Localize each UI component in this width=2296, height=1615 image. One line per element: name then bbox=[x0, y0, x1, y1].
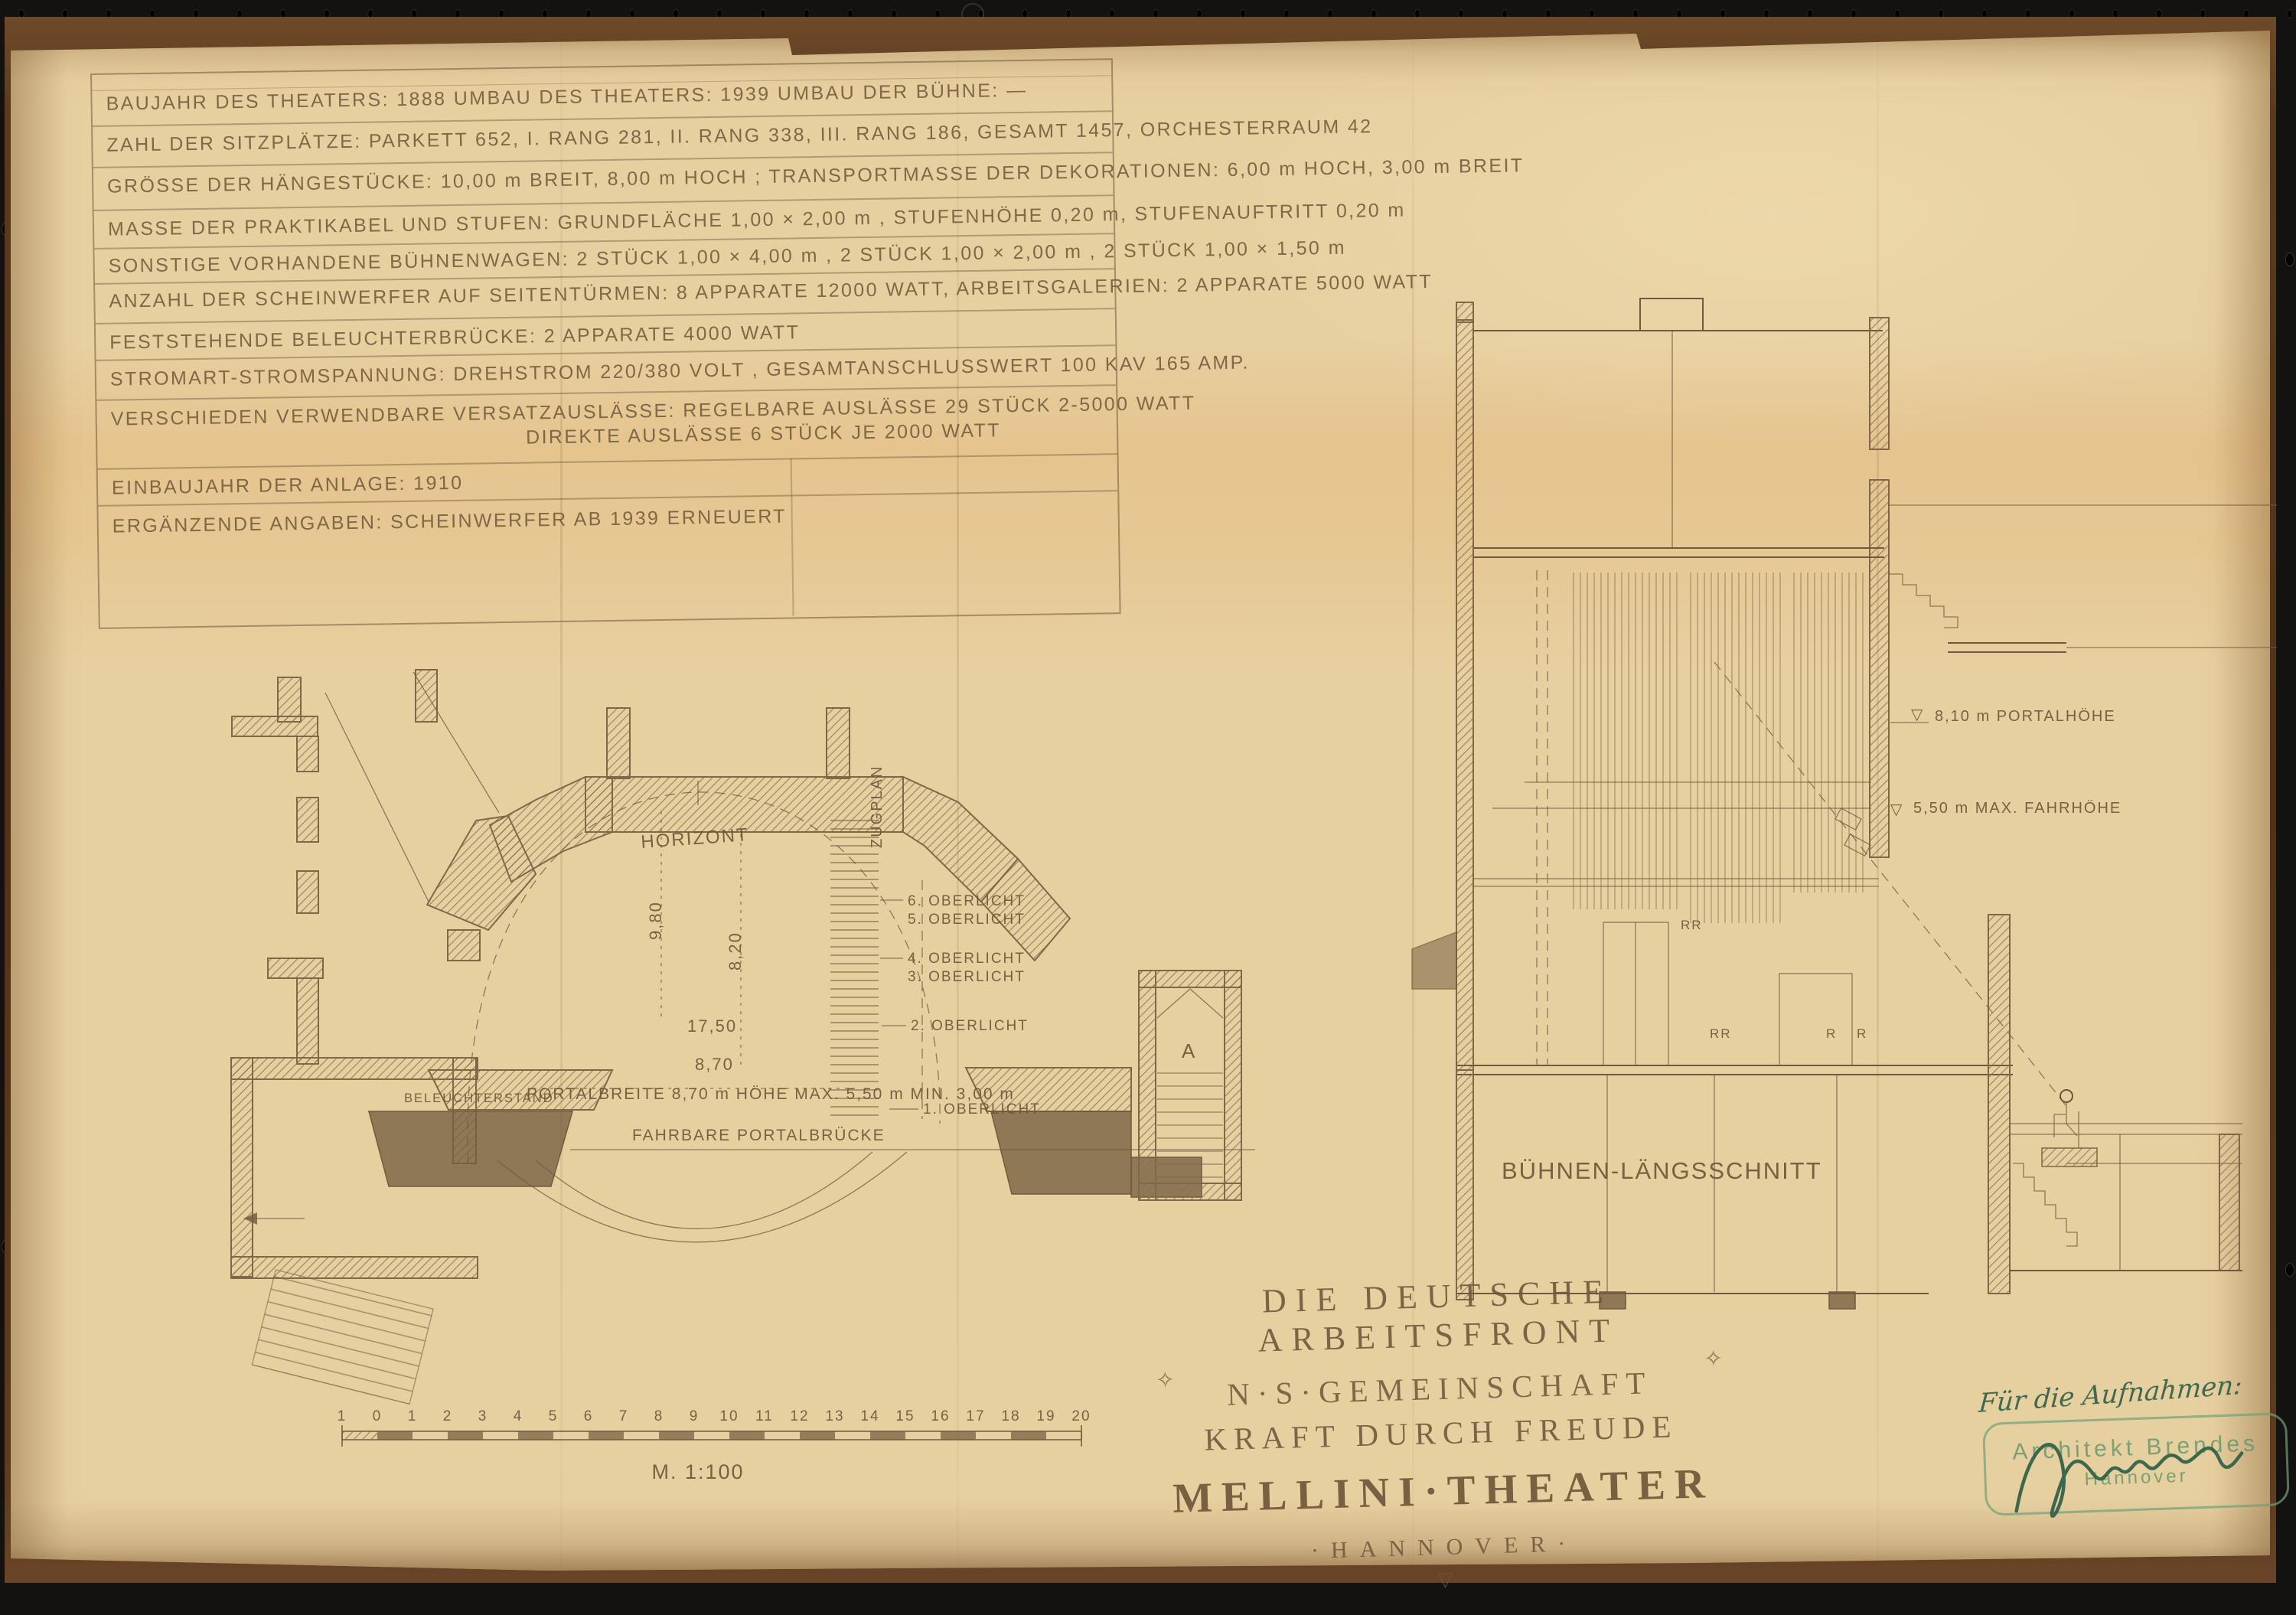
signature bbox=[1990, 1393, 2281, 1538]
plan-portal-tower-left-base bbox=[369, 1111, 572, 1186]
title-line-theater-name: MELLINI·THEATER bbox=[1172, 1459, 1713, 1522]
plan-stair-mark bbox=[1157, 989, 1190, 1018]
rope-label: R bbox=[1857, 1026, 1867, 1041]
scale-segment bbox=[870, 1431, 905, 1440]
oberlicht-label: 2. OBERLICHT bbox=[911, 1018, 1029, 1034]
scale-number: 8 bbox=[654, 1408, 664, 1424]
construction-line bbox=[325, 693, 429, 902]
section-left-ledge bbox=[1412, 932, 1456, 989]
plan-wall bbox=[297, 798, 318, 842]
section-parapet bbox=[1456, 302, 1473, 322]
section-right-wall bbox=[1870, 480, 1889, 857]
fly-lines bbox=[1688, 573, 1785, 923]
plan-stair-wall bbox=[1225, 971, 1241, 1200]
scale-segment bbox=[1011, 1431, 1046, 1440]
plan-wall bbox=[232, 716, 318, 736]
scale-number: 0 bbox=[373, 1408, 383, 1424]
scale-segment bbox=[342, 1431, 377, 1440]
scanned-theater-drawing: BAUJAHR DES THEATERS: 1888 UMBAU DES THE… bbox=[0, 0, 2296, 1615]
title-block: DIE DEUTSCHE ARBEITSFRONT ✧ ✧ N·S·GEMEIN… bbox=[1166, 1269, 1715, 1599]
oberlicht-label: 3. OBERLICHT bbox=[908, 969, 1026, 985]
plan-wall bbox=[268, 958, 323, 978]
scale-number: 15 bbox=[895, 1408, 915, 1424]
scale-segment bbox=[659, 1431, 694, 1440]
scale-number: 19 bbox=[1036, 1408, 1055, 1424]
machinery-box bbox=[1779, 974, 1852, 1065]
scale-number: 14 bbox=[860, 1408, 879, 1424]
plan-room-wall bbox=[231, 1257, 478, 1278]
section-roof-box bbox=[1640, 299, 1703, 331]
dim-label-9-80: 9,80 bbox=[646, 901, 665, 940]
rope-label: RR bbox=[1710, 1026, 1732, 1041]
rope-label: R bbox=[1826, 1026, 1837, 1041]
plan-wall-stub bbox=[827, 708, 850, 778]
scale-segment bbox=[589, 1431, 624, 1440]
scale-caption: M. 1:100 bbox=[651, 1460, 744, 1483]
plan-stair-wall bbox=[1139, 971, 1241, 987]
title-line-kdf: KRAFT DURCH FREUDE bbox=[1170, 1407, 1711, 1459]
scale-segment bbox=[729, 1431, 765, 1440]
scale-segment bbox=[448, 1431, 483, 1440]
scale-number: 20 bbox=[1071, 1408, 1091, 1424]
scale-number: 1 bbox=[408, 1408, 418, 1424]
basement-right-wall bbox=[2219, 1134, 2239, 1271]
plan-stair-lower-left bbox=[252, 1270, 433, 1404]
scale-number: 1 bbox=[338, 1408, 347, 1424]
scale-number: 16 bbox=[931, 1408, 950, 1424]
level-marker-glyph: ▽ bbox=[1911, 706, 1924, 723]
scale-number: 10 bbox=[719, 1408, 739, 1424]
plan-fly-rail bbox=[830, 813, 879, 1119]
level-marker-glyph: ▽ bbox=[1890, 801, 1903, 818]
scale-number: 12 bbox=[790, 1408, 809, 1424]
title-line-city: ·HANNOVER· bbox=[1174, 1527, 1715, 1568]
plan-stair-treads bbox=[1157, 1065, 1223, 1180]
plan-wall bbox=[297, 871, 318, 913]
scale-bar: 1 0 1 2 3 4 5 6 7 8 9 10 11 12 13 14 15 … bbox=[338, 1408, 1091, 1483]
scale-number: 18 bbox=[1001, 1408, 1020, 1424]
oberlicht-label: 6. OBERLICHT bbox=[908, 893, 1026, 909]
lighting-stand-label: BELEUCHTERSTAND bbox=[404, 1091, 554, 1105]
seated-figure bbox=[2042, 1090, 2097, 1166]
max-travel-label: 5,50 m MAX. FAHRHÖHE bbox=[1913, 800, 2122, 817]
title-line-community: N·S·GEMEINSCHAFT bbox=[1169, 1362, 1711, 1414]
oberlicht-label: 1. OBERLICHT bbox=[923, 1101, 1041, 1117]
stage-section: ▽ 8,10 m PORTALHÖHE ▽ 5,50 m MAX. FAHRHÖ… bbox=[1412, 299, 2277, 1309]
drawing-layer: .w{fill:url(#hat);stroke:#7d6848;stroke-… bbox=[0, 0, 2296, 1615]
dim-label-17-50: 17,50 bbox=[687, 1016, 737, 1036]
scale-number: 5 bbox=[549, 1408, 559, 1424]
scale-number: 2 bbox=[443, 1408, 453, 1424]
title-line-organization: DIE DEUTSCHE ARBEITSFRONT bbox=[1166, 1269, 1709, 1362]
stage-floor-plan: HORIZONT ZUGPLAN 9,80 8,20 17,50 8,70 PO… bbox=[231, 670, 1255, 1404]
plan-wall bbox=[297, 978, 318, 1064]
plan-wall bbox=[278, 677, 301, 722]
portal-bridge-label: FAHRBARE PORTALBRÜCKE bbox=[632, 1127, 885, 1144]
stair-letter-label: A bbox=[1182, 1039, 1196, 1062]
plan-wall-stub bbox=[607, 708, 630, 778]
scale-number: 13 bbox=[825, 1408, 844, 1424]
section-caption: BÜHNEN-LÄNGSSCHNITT bbox=[1502, 1157, 1822, 1184]
dim-label-8-70: 8,70 bbox=[695, 1055, 734, 1074]
scale-number: 3 bbox=[478, 1408, 488, 1424]
fly-lines bbox=[1791, 573, 1867, 892]
plan-wall bbox=[448, 930, 480, 961]
plan-portal-tower-right-base bbox=[991, 1111, 1131, 1194]
scale-number: 9 bbox=[690, 1408, 700, 1424]
scale-number: 17 bbox=[966, 1408, 985, 1424]
dim-label-8-20: 8,20 bbox=[726, 931, 745, 971]
plan-stair-wall bbox=[1139, 971, 1156, 1200]
proscenium-wall bbox=[1988, 915, 2010, 1294]
scale-segment bbox=[800, 1431, 835, 1440]
plan-room-wall bbox=[231, 1058, 253, 1277]
scale-number: 4 bbox=[514, 1408, 523, 1424]
scale-number: 6 bbox=[584, 1408, 594, 1424]
scale-segment bbox=[941, 1431, 976, 1440]
zugplan-label: ZUGPLAN bbox=[869, 765, 885, 848]
construction-line bbox=[413, 672, 499, 813]
oberlicht-label: 5. OBERLICHT bbox=[908, 912, 1026, 928]
oberlicht-label: 4. OBERLICHT bbox=[908, 951, 1026, 967]
plan-wall bbox=[416, 670, 437, 722]
footing bbox=[1829, 1292, 1855, 1309]
portal-height-label: 8,10 m PORTALHÖHE bbox=[1935, 708, 2116, 725]
plan-stair-wall bbox=[1139, 1183, 1241, 1200]
plan-stair-mark bbox=[1190, 989, 1223, 1018]
portal-dims-label: PORTALBREITE 8,70 m HÖHE MAX. 5,50 m MIN… bbox=[527, 1085, 1015, 1103]
basement-stair bbox=[2013, 1163, 2077, 1246]
fly-lines bbox=[1569, 573, 1682, 909]
section-stair-zigzag bbox=[1889, 574, 1958, 628]
scale-number: 11 bbox=[755, 1408, 774, 1424]
plan-wall bbox=[297, 736, 318, 772]
section-left-wall bbox=[1456, 320, 1473, 1070]
rope-label: RR bbox=[1681, 918, 1703, 932]
understage-left-wall bbox=[1456, 1070, 1473, 1300]
scale-number: 7 bbox=[619, 1408, 629, 1424]
section-right-wall bbox=[1870, 318, 1889, 449]
scale-segment bbox=[377, 1431, 413, 1440]
scale-segment bbox=[518, 1431, 553, 1440]
